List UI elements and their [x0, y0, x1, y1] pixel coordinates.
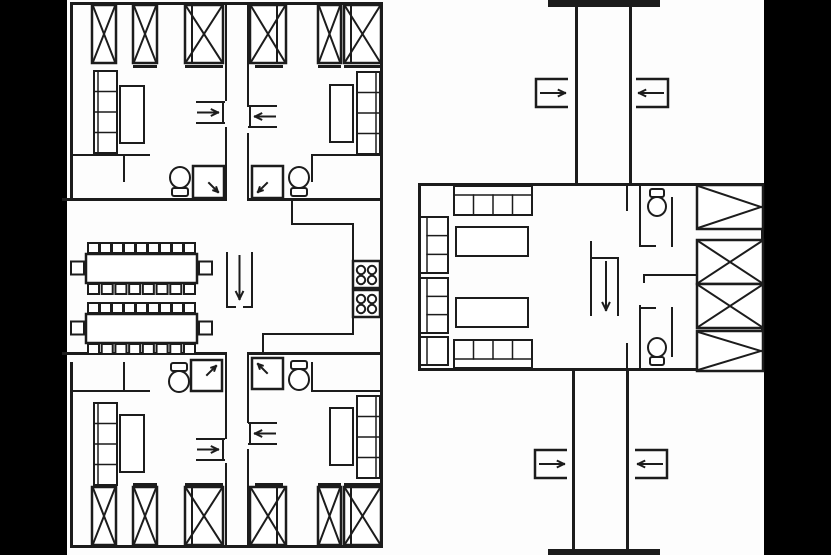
left-margin-bar [0, 0, 67, 555]
wc-wall [643, 274, 697, 276]
chair [102, 284, 113, 294]
desk [330, 408, 353, 465]
wardrobe-foot [344, 65, 381, 68]
chair [160, 303, 171, 313]
floor-plan-stage [0, 0, 831, 555]
wardrobe-foot [133, 483, 157, 486]
chair [115, 344, 126, 354]
chair [157, 344, 168, 354]
chair [88, 284, 99, 294]
desk [330, 85, 353, 142]
top-strip-left-wall [225, 127, 227, 201]
wardrobe-divider [276, 5, 278, 63]
chair [184, 243, 195, 253]
wc-wall [639, 307, 656, 309]
wc-wall [643, 274, 645, 283]
top-strip-left-wall [225, 2, 227, 101]
toilet-icon [291, 361, 307, 369]
chair [100, 303, 111, 313]
top-strip-right-wall [247, 2, 249, 107]
wc-wall [639, 305, 641, 369]
chair [88, 303, 99, 313]
wardrobe-foot [185, 65, 223, 68]
wc-wall [671, 307, 673, 357]
chair [112, 303, 123, 313]
corridor-bottom-left-wall [572, 371, 575, 549]
toilet-icon [289, 369, 309, 390]
bottom-strip-left-wall [225, 463, 227, 545]
chair [100, 243, 111, 253]
chair [199, 322, 212, 335]
wc-partition [311, 390, 381, 392]
toilet-icon [648, 338, 666, 357]
bottom-strip-left-wall [225, 355, 227, 439]
chair [88, 344, 99, 354]
wc-partition [311, 362, 313, 390]
chair [148, 303, 159, 313]
chair [124, 243, 135, 253]
wardrobe-foot [185, 483, 223, 486]
wardrobe-divider [276, 487, 278, 545]
wardrobe-divider [350, 5, 352, 63]
wc-wall [639, 183, 641, 247]
chair [170, 284, 181, 294]
wc-wall [671, 197, 673, 247]
coffee-table [456, 298, 528, 327]
wardrobe-divider [191, 5, 193, 63]
bottom-strip-right-wall [247, 355, 249, 423]
corridor-bottom-cap [548, 549, 660, 555]
block-a-lower-mid-wall-right [247, 352, 383, 355]
chair [172, 303, 183, 313]
wc-partition [123, 362, 125, 390]
closet-tribox [697, 331, 763, 371]
wardrobe-foot [255, 65, 283, 68]
chair [102, 344, 113, 354]
coffee-table [456, 227, 528, 256]
sofa [420, 217, 448, 273]
chair [184, 344, 195, 354]
desk [120, 86, 144, 143]
shower-tray [193, 166, 224, 198]
wc-partition [123, 154, 125, 182]
toilet-icon [650, 357, 664, 365]
corridor-top-right-wall [629, 6, 632, 183]
chair [184, 303, 195, 313]
chair [115, 284, 126, 294]
block-a-left-wall-lower [70, 362, 73, 548]
wardrobe-foot [255, 483, 283, 486]
wc-partition [311, 154, 313, 182]
wardrobe-foot [318, 483, 341, 486]
corridor-top-cap [548, 0, 660, 7]
wc-wall [639, 245, 656, 247]
kitchen-wall [262, 333, 264, 354]
chair [136, 303, 147, 313]
wardrobe-foot [344, 483, 381, 486]
wc-partition [70, 390, 150, 392]
shower-tray [252, 166, 283, 198]
toilet-icon [289, 167, 309, 188]
chair [112, 243, 123, 253]
chair [172, 243, 183, 253]
corridor-top-left-wall [575, 6, 578, 183]
wardrobe-foot [133, 65, 157, 68]
chair [136, 243, 147, 253]
dining-table [86, 314, 197, 343]
toilet-icon [648, 197, 666, 216]
toilet-icon [291, 188, 307, 196]
wc-jamb [626, 343, 628, 371]
wc-partition [70, 154, 150, 156]
chair [129, 284, 140, 294]
chair [88, 243, 99, 253]
bottom-strip-right-wall [247, 449, 249, 545]
toilet-icon [171, 363, 187, 371]
chair [170, 344, 181, 354]
right-margin-bar [764, 0, 831, 555]
block-a-left-wall-upper [70, 2, 73, 200]
chair [124, 303, 135, 313]
sofa [420, 278, 448, 333]
toilet-icon [650, 189, 664, 197]
top-strip-right-wall [247, 133, 249, 201]
wardrobe-divider [191, 487, 193, 545]
armchair [420, 337, 448, 365]
chair [148, 243, 159, 253]
chair [71, 262, 84, 275]
chair [71, 322, 84, 335]
wardrobe-foot [318, 65, 341, 68]
chair [157, 284, 168, 294]
corridor-bottom-right-wall [626, 371, 629, 549]
kitchen-stove [353, 290, 380, 317]
desk [120, 415, 144, 472]
closet-tribox [697, 185, 763, 229]
chair [184, 284, 195, 294]
wardrobe-divider [350, 487, 352, 545]
floor-plan-svg [0, 0, 831, 555]
toilet-icon [169, 371, 189, 392]
chair [143, 344, 154, 354]
toilet-icon [172, 188, 188, 196]
chair [129, 344, 140, 354]
toilet-icon [170, 167, 190, 188]
kitchen-wall [262, 333, 354, 335]
chair [160, 243, 171, 253]
kitchen-wall [291, 223, 354, 225]
wc-jamb [626, 183, 628, 211]
chair [143, 284, 154, 294]
kitchen-wall [291, 201, 293, 225]
chair [199, 262, 212, 275]
dining-table [86, 254, 197, 283]
kitchen-stove [353, 261, 380, 288]
